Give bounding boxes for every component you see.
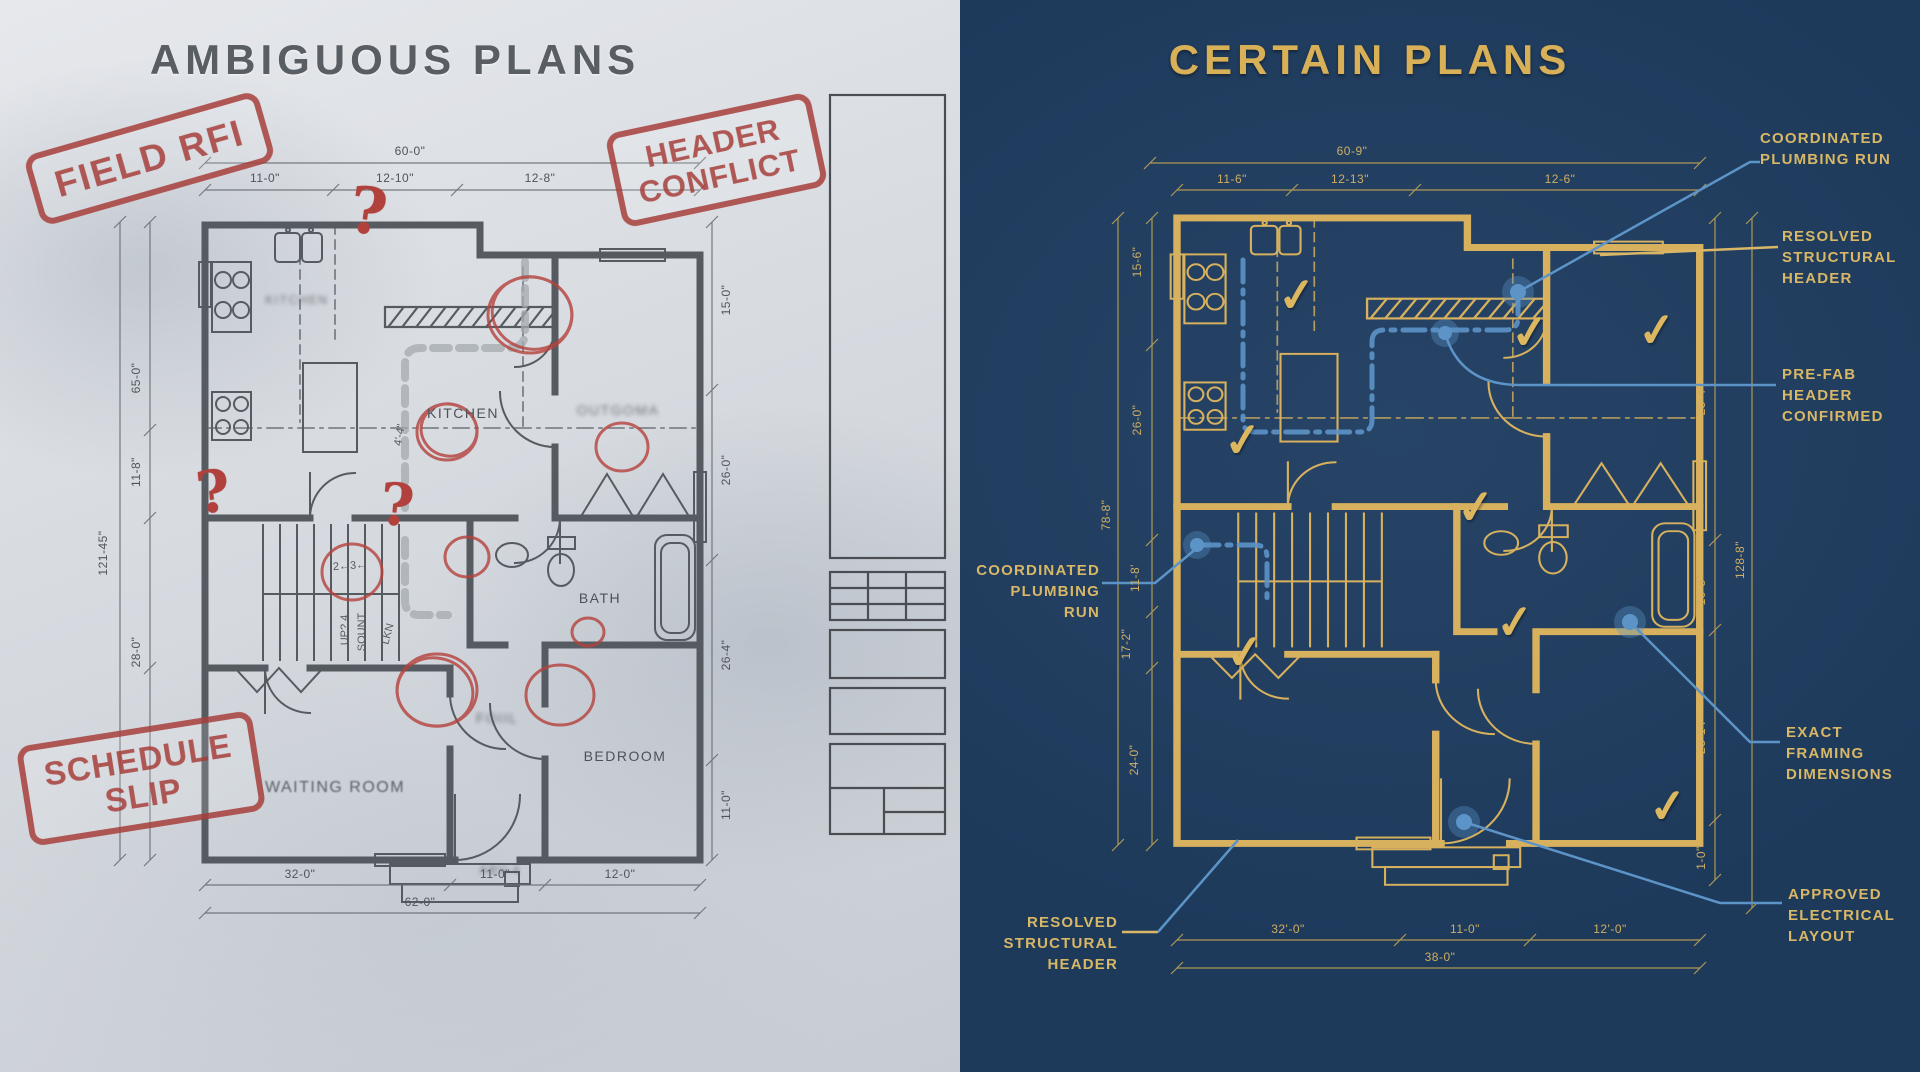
callout-line: DIMENSIONS [1786,764,1893,785]
dim-left: 11-8' [1128,564,1142,592]
dim-bottom-seg: 32'-0" [1271,922,1305,936]
dim-right-outer: 128-8" [1733,541,1747,579]
dim-right: 1-0" [1694,846,1708,870]
callout-line: FRAMING [1786,743,1893,764]
callout-exact-framing-dimensions: EXACT FRAMING DIMENSIONS [1786,722,1893,785]
coordination-nodes [1183,276,1646,838]
question-mark-annotation: ? [193,456,234,527]
approval-checkmark: ✓ [1454,478,1498,536]
plans-comparison-poster: AMBIGUOUS PLANS [0,0,1920,1072]
dim-top-seg: 12-6" [1545,172,1576,186]
dim-top-total: 60-9" [1337,144,1368,158]
dim-right: 26-0" [719,455,733,486]
dim-left: 26-0" [1130,405,1144,436]
callout-line: RESOLVED [1782,226,1897,247]
approval-checkmark: ✓ [1493,593,1537,651]
callout-line: CONFIRMED [1782,406,1884,427]
dim-right: 25-4" [1694,385,1708,416]
callout-resolved-structural-header-right: RESOLVED STRUCTURAL HEADER [1782,226,1897,289]
callout-line: RUN [968,602,1100,623]
room-label-foyer-smudged: FOIIL [476,710,519,726]
dim-left: 17-2" [1119,629,1133,660]
floor-plan-sketch [199,225,706,902]
callout-coordinated-plumbing-run-left: COORDINATED PLUMBING RUN [968,560,1100,623]
approval-checkmark: ✓ [1508,303,1552,361]
dim-bottom-seg: 11-0" [480,867,510,881]
callout-line: EXACT [1786,722,1893,743]
callout-line: PLUMBING RUN [1760,149,1891,170]
dim-left: 24-0" [1127,745,1141,776]
dim-right: 15-0" [719,285,733,316]
dim-top-seg: 11-0" [250,171,280,185]
callout-line: APPROVED [1788,884,1895,905]
callout-line: PLUMBING [968,581,1100,602]
dim-bottom-seg: 11-0" [1450,922,1480,936]
certain-plans-panel: CERTAIN PLANS [960,0,1920,1072]
room-label-kitchen-small: KITCHEN [265,293,328,307]
callout-resolved-structural-header-bottom: RESOLVED STRUCTURAL HEADER [978,912,1118,975]
dim-right: 11-0" [719,790,733,820]
room-label-smudged: OUTGOMA [577,402,660,418]
callout-line: HEADER [1782,268,1897,289]
callout-coordinated-plumbing-run-top: COORDINATED PLUMBING RUN [1760,128,1891,170]
room-label-kitchen: KITCHEN [427,405,499,421]
callout-line: HEADER [978,954,1118,975]
stair-note-up: UP? 4 [339,615,351,646]
approval-checkmark: ✓ [1275,266,1319,324]
dim-bottom-seg: 12-0" [605,867,636,881]
dim-left-outer: 121-45" [96,530,110,575]
room-label-bedroom: BEDROOM [584,748,667,764]
dimension-lines [1112,157,1758,974]
room-label-waiting-room: WAITING ROOM [265,779,405,797]
dim-top-seg: 12-8" [525,171,556,185]
room-label-bath: BATH [579,590,621,606]
dim-bottom-seg: 32-0" [285,867,316,881]
stair-sequence-note: 2←3← [332,559,367,573]
callout-approved-electrical-layout: APPROVED ELECTRICAL LAYOUT [1788,884,1895,947]
callout-line: COORDINATED [968,560,1100,581]
floor-plan-blueprint [1171,218,1706,885]
dim-top-total: 60-0" [395,144,426,158]
dim-bottom-total: 62-0" [405,895,436,909]
callout-line: HEADER [1782,385,1884,406]
dim-left-outer: 78-8" [1099,500,1113,531]
callout-line: LAYOUT [1788,926,1895,947]
question-mark-annotation: ? [377,470,417,541]
dim-top-seg: 12-13" [1331,172,1369,186]
callout-prefab-header-confirmed: PRE-FAB HEADER CONFIRMED [1782,364,1884,427]
callout-line: PRE-FAB [1782,364,1884,385]
dim-bottom-seg: 12'-0" [1593,922,1627,936]
dim-left: 28-0" [129,637,143,668]
dim-top-seg: 12-10" [376,171,414,185]
dim-left: 11-8" [129,457,143,487]
stair-note-sount: SOUNT [356,613,368,652]
ambiguous-plans-panel: AMBIGUOUS PLANS [0,0,960,1072]
callout-line: RESOLVED [978,912,1118,933]
dim-left: 65-0" [129,363,143,394]
red-markup-circles [322,268,648,733]
title-block [830,95,945,834]
callout-line: ELECTRICAL [1788,905,1895,926]
dim-right: 23-14" [1694,716,1708,754]
approval-checkmark: ✓ [1635,301,1679,359]
callout-line: STRUCTURAL [1782,247,1897,268]
approval-checkmark: ✓ [1223,623,1267,681]
dim-right: 10-8" [1694,575,1708,606]
dim-right: 26-4" [719,640,733,671]
approval-checkmark: ✓ [1221,411,1265,469]
callout-line: COORDINATED [1760,128,1891,149]
approval-checkmark: ✓ [1646,777,1690,835]
callout-line: STRUCTURAL [978,933,1118,954]
dim-top-seg: 11-6" [1217,172,1247,186]
dim-left: 15-6" [1130,247,1144,278]
dim-bottom-total: 38-0" [1425,950,1456,964]
